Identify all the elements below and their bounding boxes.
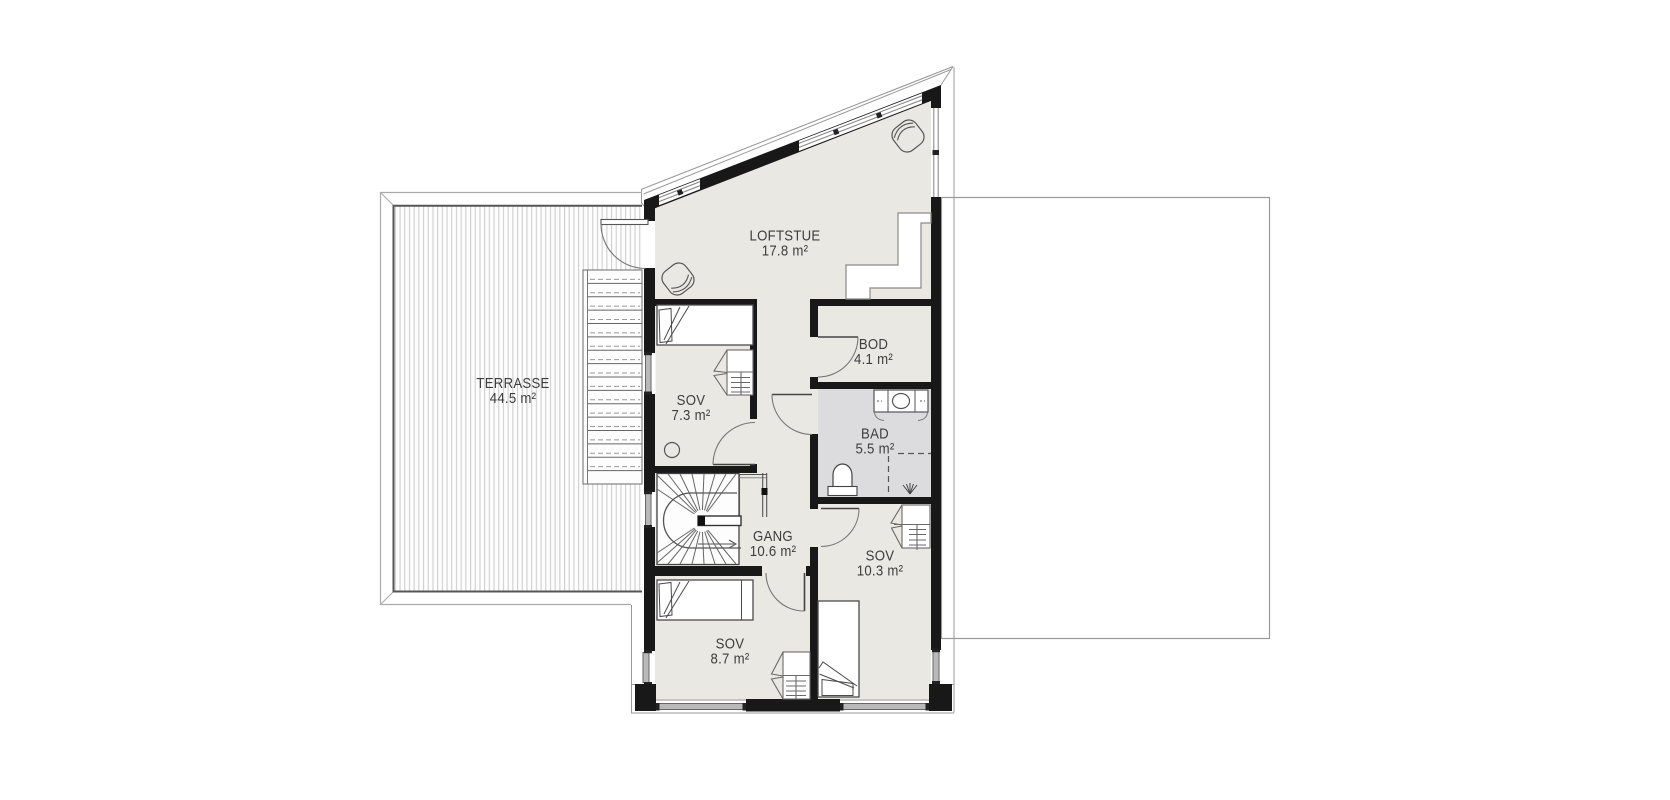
svg-text:17.8 m²: 17.8 m² xyxy=(762,242,809,259)
svg-text:4.1 m²: 4.1 m² xyxy=(854,350,893,367)
svg-text:44.5 m²: 44.5 m² xyxy=(490,389,537,406)
svg-text:8.7 m²: 8.7 m² xyxy=(711,650,750,667)
svg-text:10.6 m²: 10.6 m² xyxy=(750,542,797,559)
svg-text:10.3 m²: 10.3 m² xyxy=(857,562,904,579)
svg-text:7.3 m²: 7.3 m² xyxy=(672,406,711,423)
svg-text:5.5 m²: 5.5 m² xyxy=(856,440,895,457)
